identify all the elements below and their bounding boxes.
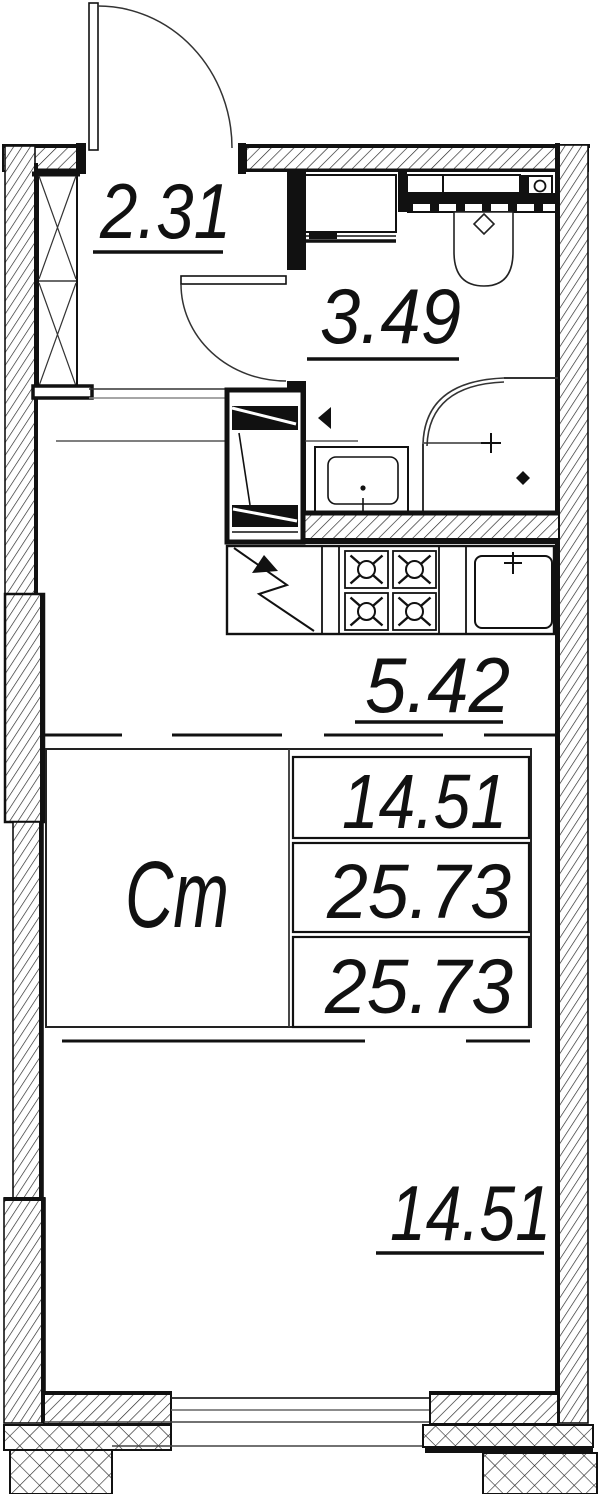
- svg-text:3.49: 3.49: [320, 272, 461, 360]
- svg-text:25.73: 25.73: [326, 849, 511, 935]
- svg-text:25.73: 25.73: [324, 944, 513, 1030]
- svg-text:Cm: Cm: [125, 842, 229, 948]
- svg-text:5.42: 5.42: [365, 641, 510, 729]
- svg-text:14.51: 14.51: [390, 1169, 551, 1257]
- svg-text:2.31: 2.31: [99, 167, 231, 255]
- svg-text:14.51: 14.51: [342, 759, 507, 845]
